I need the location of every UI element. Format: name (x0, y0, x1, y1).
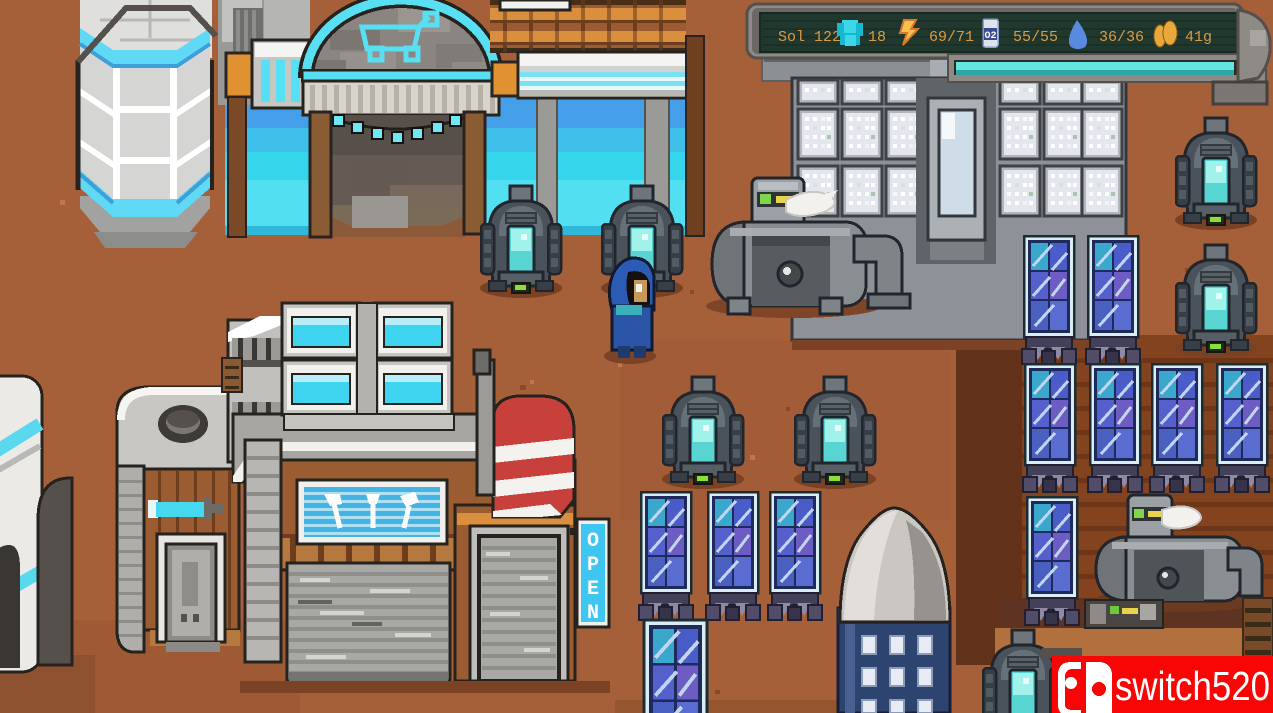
svg-text:E: E (587, 578, 599, 601)
svg-text:55/55: 55/55 (1013, 29, 1058, 46)
svg-text:P: P (587, 554, 599, 577)
svg-text:69/71: 69/71 (929, 29, 974, 46)
svg-text:O2: O2 (985, 31, 997, 42)
svg-text:36/36: 36/36 (1099, 29, 1144, 46)
svg-text:N: N (587, 602, 599, 625)
svg-text:switch520: switch520 (1115, 663, 1270, 709)
svg-text:Sol 122: Sol 122 (778, 29, 841, 46)
svg-text:41g: 41g (1185, 29, 1212, 46)
svg-text:18: 18 (868, 29, 886, 46)
svg-text:O: O (587, 530, 599, 553)
